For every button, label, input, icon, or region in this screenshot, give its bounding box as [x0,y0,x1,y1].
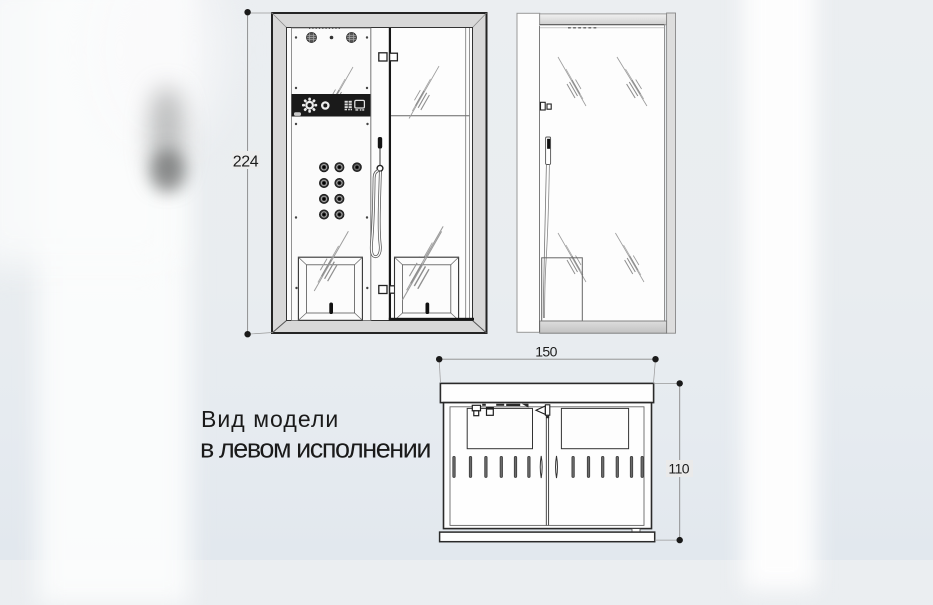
svg-text:224: 224 [233,154,259,171]
svg-text:110: 110 [668,461,689,477]
svg-text:150: 150 [535,344,557,360]
svg-text:Вид модели: Вид модели [201,406,339,432]
svg-text:в левом исполнении: в левом исполнении [200,434,430,464]
